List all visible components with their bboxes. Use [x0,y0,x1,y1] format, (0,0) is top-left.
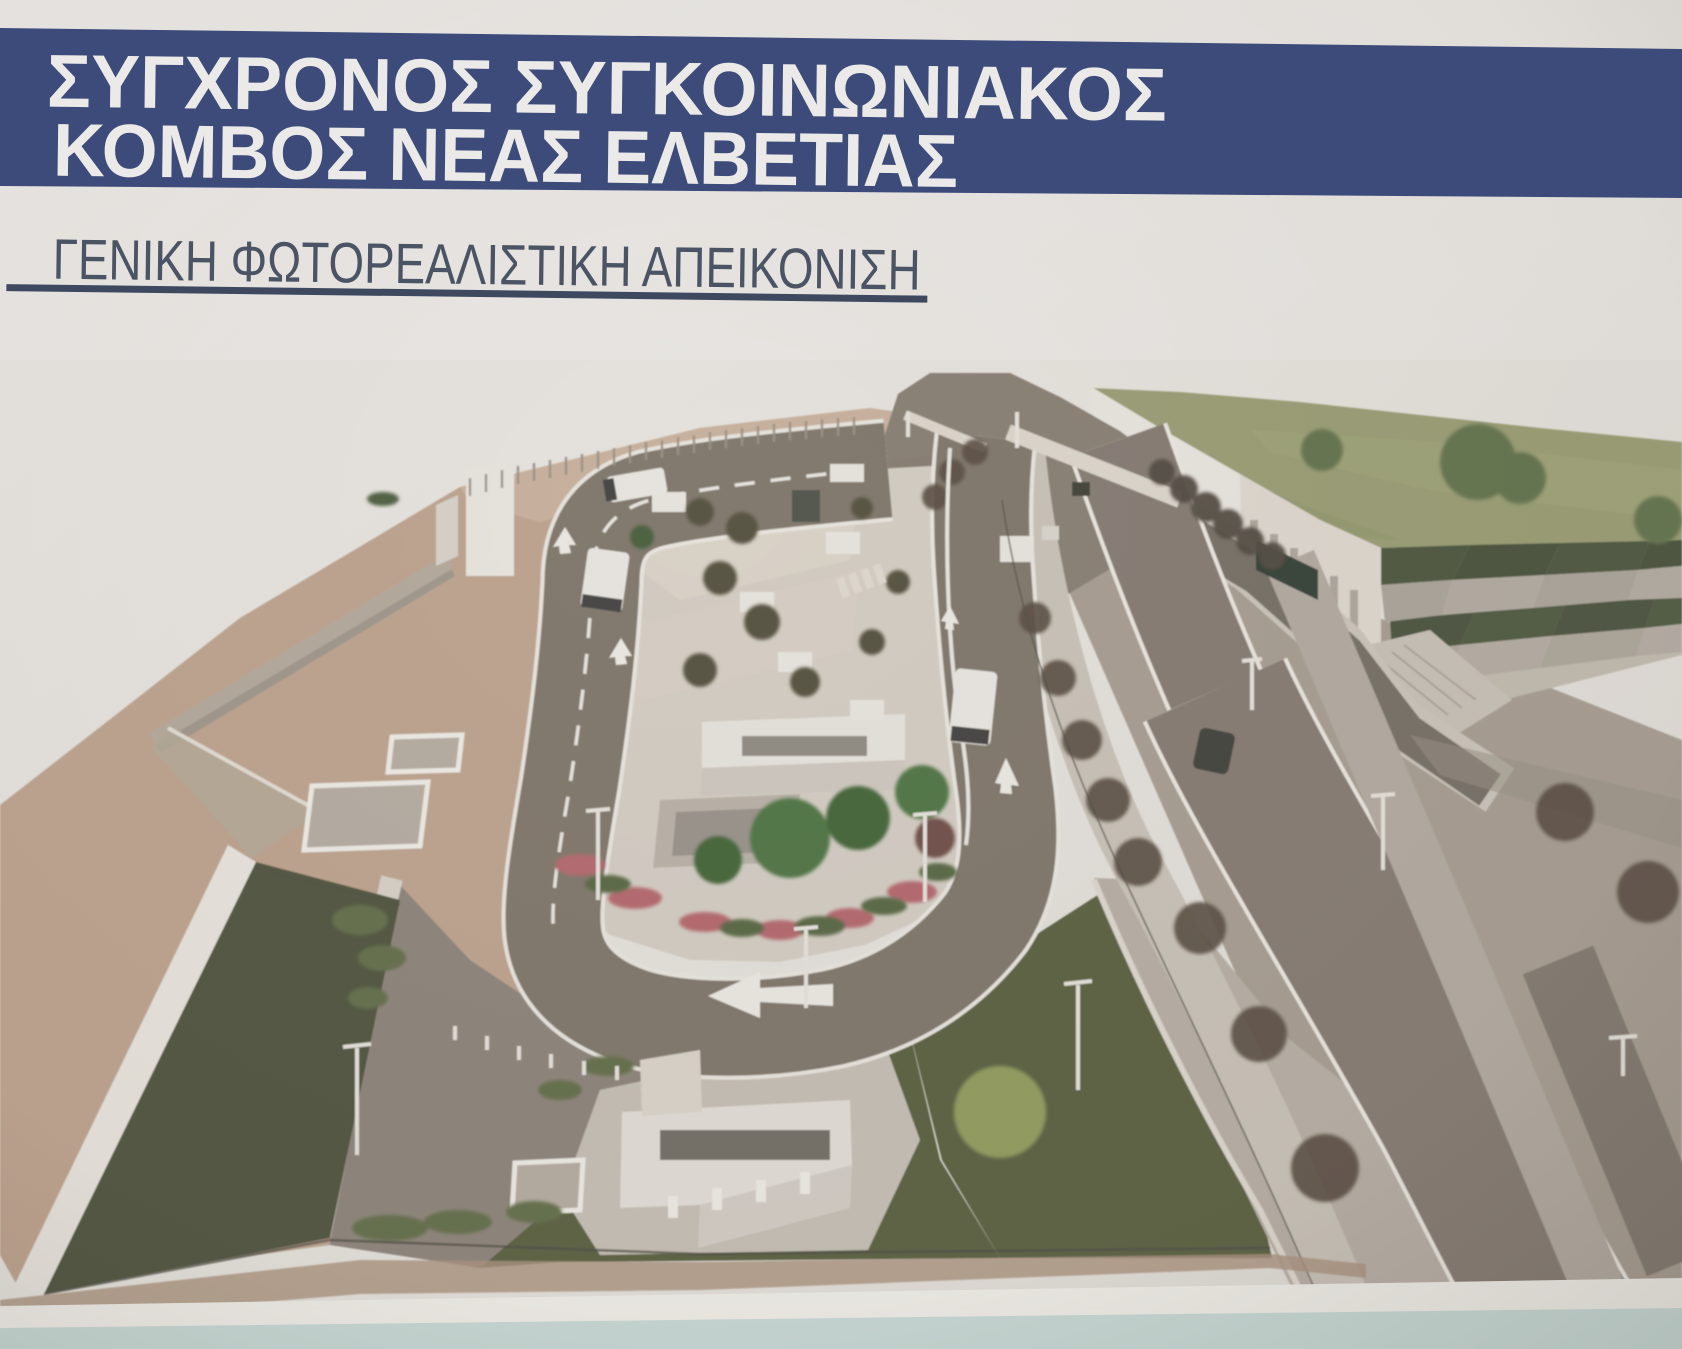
svg-text:ΚΟΜΒΟΣ ΝΕΑΣ ΕΛΒΕΤΙΑΣ: ΚΟΜΒΟΣ ΝΕΑΣ ΕΛΒΕΤΙΑΣ [53,108,959,203]
